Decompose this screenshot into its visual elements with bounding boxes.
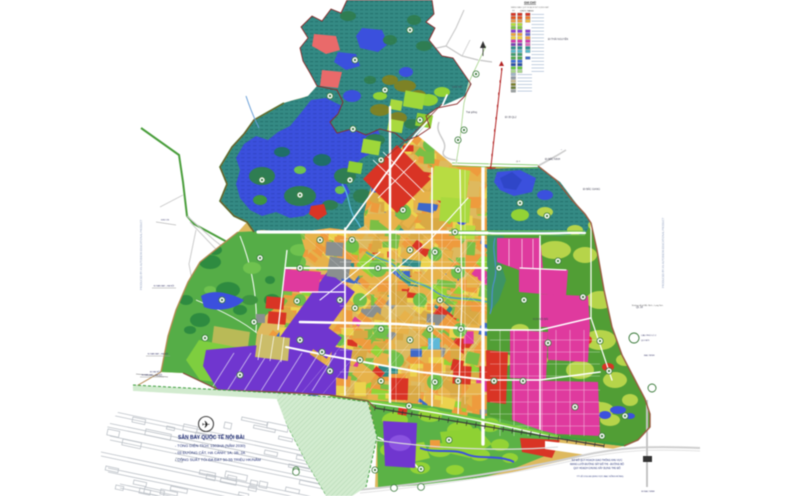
svg-text:CHỨC NĂNG: CHỨC NĂNG: [520, 10, 534, 13]
svg-text:ĐI HÀ NỘI: ĐI HÀ NỘI: [150, 371, 161, 374]
svg-text:PRODUCED BY AN AUTODESK EDUCAT: PRODUCED BY AN AUTODESK EDUCATIONAL PROD…: [139, 219, 143, 290]
svg-text:ĐI BẮC NINH: ĐI BẮC NINH: [545, 158, 560, 161]
svg-text:KCN NỘI BÀI: KCN NỘI BÀI: [533, 318, 548, 321]
svg-text:SÂN BAY QUỐC TẾ NỘI BÀI: SÂN BAY QUỐC TẾ NỘI BÀI: [178, 433, 245, 441]
svg-text:- CÔNG SUẤT TỐI ĐA ĐẠT 50-55 T: - CÔNG SUẤT TỐI ĐA ĐẠT 50-55 TRIỆU HK/NĂ…: [175, 457, 261, 462]
svg-text:- 03 ĐƯỜNG CẤT, HẠ CÁNH: 1A; 1: - 03 ĐƯỜNG CẤT, HẠ CÁNH: 1A; 1B; 2A: [175, 450, 246, 455]
svg-text:ĐI 35 QL2: ĐI 35 QL2: [505, 116, 517, 119]
svg-text:✈: ✈: [202, 420, 210, 431]
svg-text:ĐI THÁI NGUYÊN: ĐI THÁI NGUYÊN: [548, 38, 568, 41]
svg-text:PRODUCED BY AN AUTODESK EDUCAT: PRODUCED BY AN AUTODESK EDUCATIONAL PROD…: [661, 217, 665, 288]
svg-text:GHI CHÚ: GHI CHÚ: [524, 0, 536, 4]
svg-text:Đường sắt đi Bắc Ninh - Lạng S: Đường sắt đi Bắc Ninh - Lạng Sơn: [632, 304, 663, 307]
svg-text:QL3 MỚI: QL3 MỚI: [641, 339, 650, 342]
svg-text:ĐI SÂN BAY - HÀ NỘI: ĐI SÂN BAY - HÀ NỘI: [142, 374, 163, 377]
svg-text:BẢNG MÀU QUY HOẠCH SỬ DỤNG ĐẤT: BẢNG MÀU QUY HOẠCH SỬ DỤNG ĐẤT: [511, 6, 550, 9]
svg-text:ĐI SÂN BAY - HÀ NỘI: ĐI SÂN BAY - HÀ NỘI: [154, 285, 175, 288]
svg-text:VÂN TRÌ: VÂN TRÌ: [452, 86, 462, 89]
svg-text:SƠ ĐỒ QUY HOẠCH GIAO THÔNG KHU: SƠ ĐỒ QUY HOẠCH GIAO THÔNG KHU VỰC: [572, 459, 623, 462]
svg-text:KHU CN: KHU CN: [161, 220, 169, 222]
svg-text:ĐI BẮC NINH: ĐI BẮC NINH: [641, 490, 655, 493]
svg-text:ĐI BẮC GIANG: ĐI BẮC GIANG: [583, 188, 600, 191]
svg-text:QL 3: QL 3: [516, 161, 520, 163]
svg-text:TỸ LỆ 1/10.000 (KHU VỰC BẮC SÔ: TỸ LỆ 1/10.000 (KHU VỰC BẮC SÔNG HỒNG): [577, 475, 624, 478]
svg-text:ĐI SÂN BAY - HÀ NỘI: ĐI SÂN BAY - HÀ NỘI: [148, 353, 169, 356]
svg-text:- TỔNG DIỆN TÍCH: 1503HA (NĂM: - TỔNG DIỆN TÍCH: 1503HA (NĂM 2030): [175, 443, 246, 448]
svg-text:→: →: [560, 148, 563, 151]
svg-text:MẠNG LƯỚI ĐƯỜNG SẮT ĐÔ THỊ - Đ: MẠNG LƯỚI ĐƯỜNG SẮT ĐÔ THỊ - ĐƯỜNG BỘ: [570, 463, 624, 466]
svg-text:Trại giống: Trại giống: [466, 111, 478, 114]
svg-text:CẦU PHÙ LỖ 2: CẦU PHÙ LỖ 2: [641, 334, 657, 337]
svg-text:QUY HOẠCH CHUNG XÂY DỰNG THỦ Đ: QUY HOẠCH CHUNG XÂY DỰNG THỦ ĐÔ: [573, 467, 620, 470]
svg-text:BẮC NINH: BẮC NINH: [644, 354, 655, 357]
